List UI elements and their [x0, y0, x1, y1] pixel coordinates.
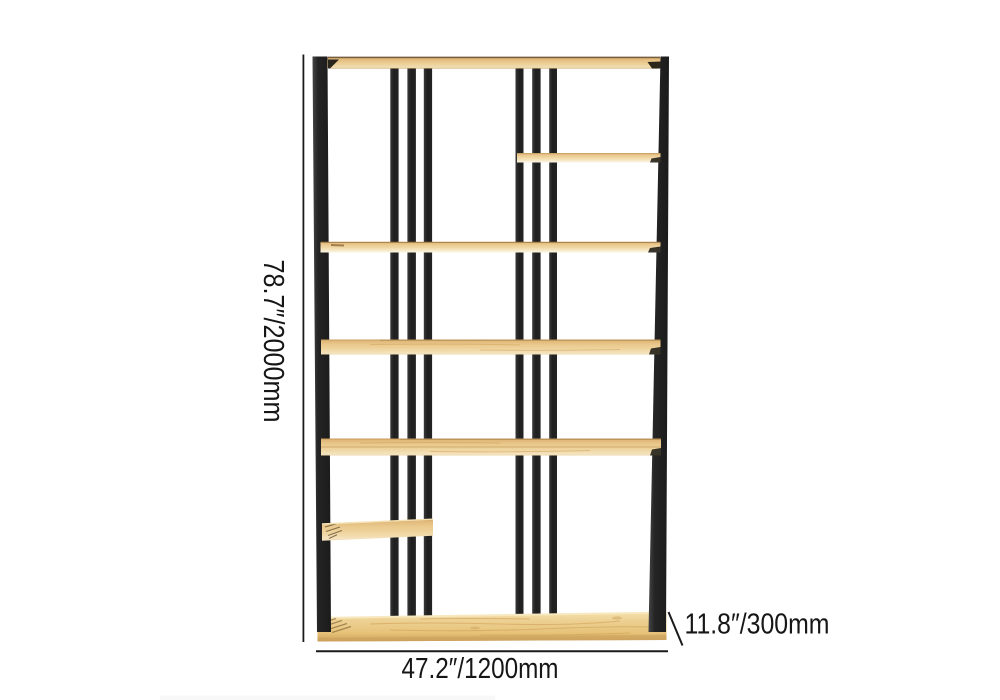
svg-text:78.7″/2000mm: 78.7″/2000mm: [257, 260, 289, 423]
svg-text:47.2″/1200mm: 47.2″/1200mm: [402, 653, 559, 685]
svg-text:11.8″/300mm: 11.8″/300mm: [685, 609, 830, 641]
